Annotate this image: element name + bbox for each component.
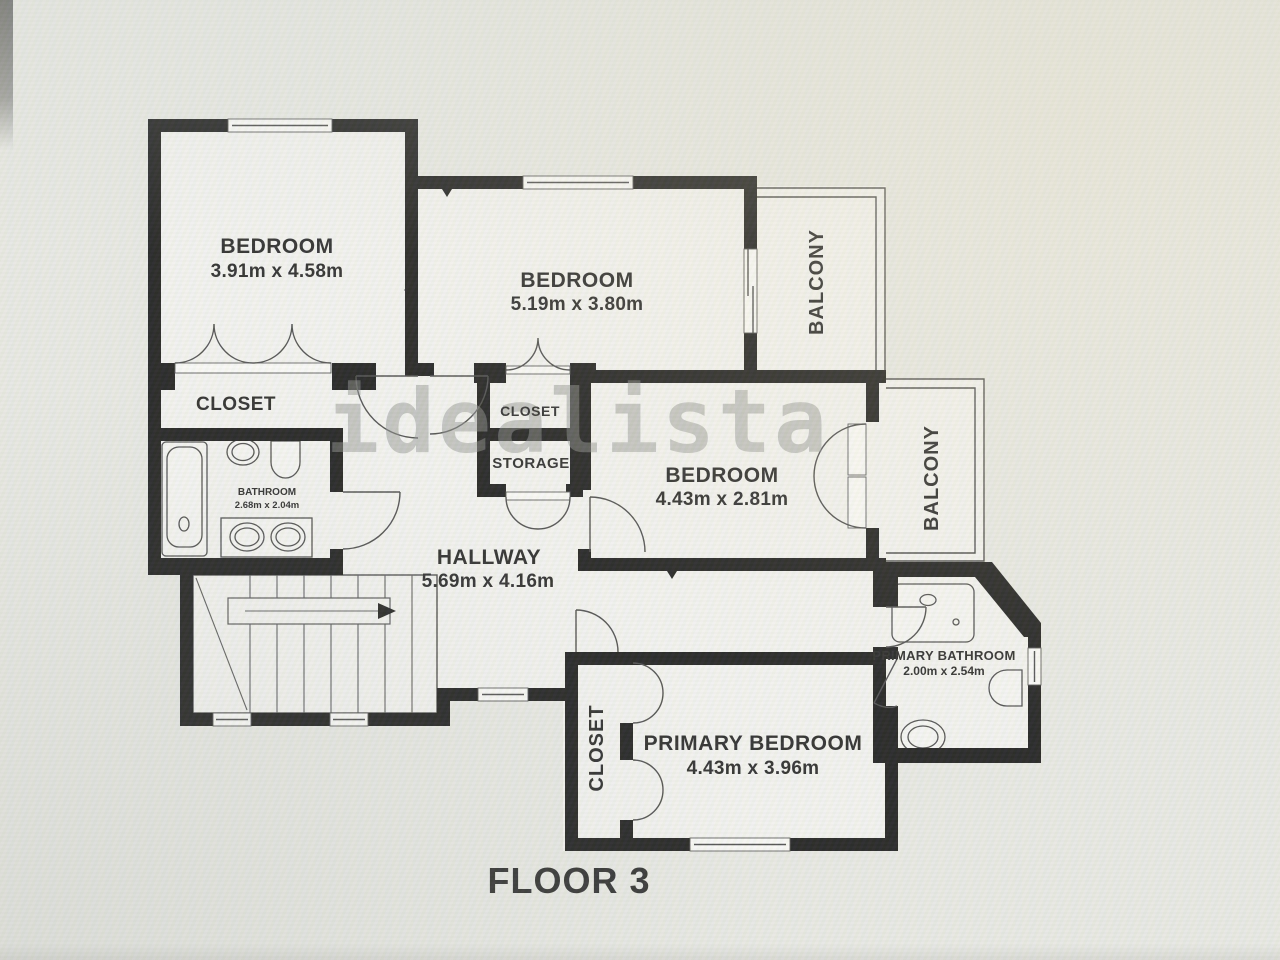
room-label-balcony-right: BALCONY <box>921 425 943 531</box>
window <box>213 713 251 726</box>
room-dims-bedroom-2: 5.19m x 3.80m <box>511 294 644 315</box>
shower <box>892 584 974 642</box>
room-label-bedroom-3: BEDROOM <box>665 464 778 487</box>
room-dims-bedroom-3: 4.43m x 2.81m <box>656 489 789 510</box>
wall-segment <box>885 706 898 851</box>
wall-segment <box>477 484 506 497</box>
primary-sink <box>989 670 1022 706</box>
photo-edge-artifact <box>0 0 13 150</box>
room-label-bathroom: BATHROOM <box>238 487 296 498</box>
wall-segment <box>565 652 578 851</box>
wall-segment <box>405 132 418 376</box>
room-dims-bathroom: 2.68m x 2.04m <box>235 500 299 511</box>
window <box>478 688 528 701</box>
shower-knob <box>953 619 959 625</box>
room-label-storage: STORAGE <box>492 455 569 472</box>
photo-bottom-shade <box>0 944 1280 960</box>
room-dims-primary-bathroom: 2.00m x 2.54m <box>903 664 984 678</box>
room-label-bedroom-2: BEDROOM <box>520 269 633 292</box>
floor-plan-svg: idealista BEDROOM 3.91m x 4.58m BEDROOM … <box>0 0 1280 960</box>
wall-segment <box>148 119 161 575</box>
room-label-bedroom-1: BEDROOM <box>220 235 333 258</box>
watermark: idealista <box>326 370 830 473</box>
wall-segment <box>873 571 898 607</box>
room-label-closet-primary: CLOSET <box>586 704 608 791</box>
window <box>1028 648 1041 685</box>
window <box>690 838 790 851</box>
sliding-door-balcony <box>744 249 757 333</box>
room-dims-primary-bedroom: 4.43m x 3.96m <box>687 758 820 779</box>
room-label-closet-mid: CLOSET <box>500 403 560 419</box>
wall-segment <box>180 562 193 726</box>
wall-segment <box>866 383 879 422</box>
wall-segment <box>148 428 343 441</box>
wall-segment <box>873 748 1041 763</box>
floor-label: FLOOR 3 <box>487 860 650 901</box>
room-label-closet-bedroom1: CLOSET <box>196 394 276 415</box>
wall-segment <box>620 723 633 760</box>
room-dims-bedroom-1: 3.91m x 4.58m <box>211 261 344 282</box>
bidet <box>271 441 300 478</box>
room-label-hallway: HALLWAY <box>437 546 541 569</box>
bathtub-drain <box>179 517 189 531</box>
room-label-primary-bathroom: PRIMARY BATHROOM <box>872 648 1015 663</box>
wall-segment <box>148 558 343 575</box>
wall-segment <box>620 652 633 663</box>
window <box>228 119 332 132</box>
wall-segment <box>148 363 175 390</box>
window <box>330 713 368 726</box>
window <box>523 176 633 189</box>
wall-segment <box>565 652 885 665</box>
room-label-primary-bedroom: PRIMARY BEDROOM <box>644 732 863 755</box>
wall-segment <box>744 189 757 249</box>
room-dims-hallway: 5.69m x 4.16m <box>422 571 555 592</box>
floorplan-screenshot: idealista BEDROOM 3.91m x 4.58m BEDROOM … <box>0 0 1280 960</box>
wall-segment <box>578 558 886 571</box>
shower-drain <box>920 595 936 606</box>
room-label-balcony-top: BALCONY <box>806 229 828 335</box>
